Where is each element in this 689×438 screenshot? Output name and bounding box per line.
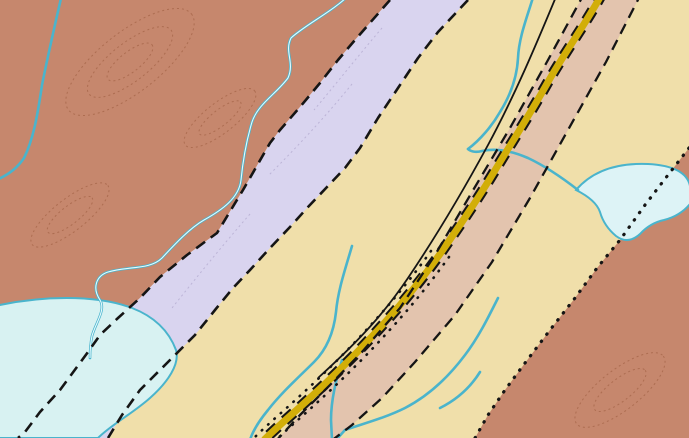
- map-canvas: [0, 0, 689, 438]
- geologic-map[interactable]: [0, 0, 689, 438]
